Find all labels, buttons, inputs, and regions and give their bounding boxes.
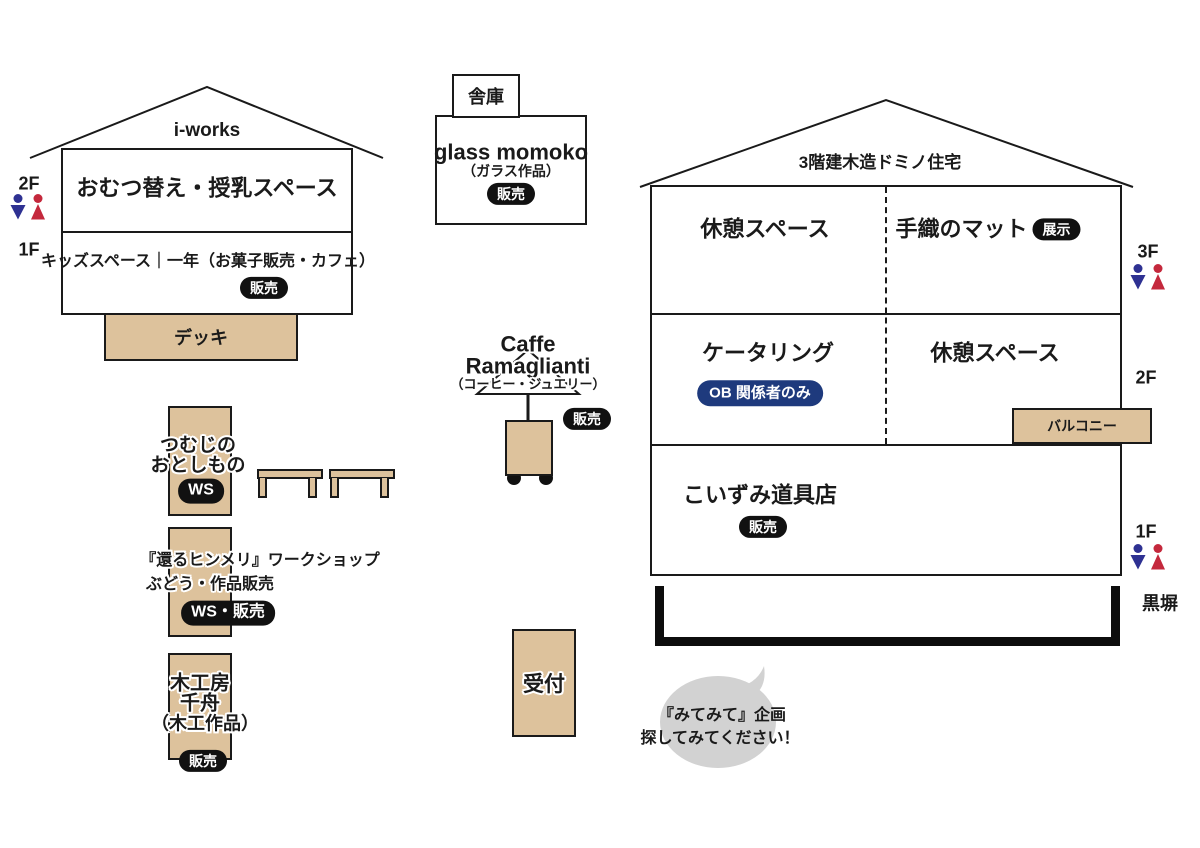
note-bubble-line1: 『みてみて』企画	[658, 707, 786, 725]
right-building-roof	[640, 100, 1133, 187]
restroom-icons	[1129, 264, 1169, 290]
storage-box: 舎庫	[452, 74, 520, 118]
right-building-3f-label: 3F	[1137, 242, 1158, 263]
woven-mat-label: 手織のマット	[895, 216, 1027, 241]
mokkobo-label-line3: （木工作品）	[151, 714, 259, 735]
note-bubble-line2: 探してみてください！	[640, 730, 799, 748]
caffe-subtitle: （コーヒー・ジュエリー）	[450, 378, 605, 393]
table-leg	[330, 478, 339, 498]
male-icon	[1131, 264, 1146, 290]
mokkobo-label-line2: 千舟	[180, 693, 220, 716]
tsumuji-badge-wrap: WS	[178, 479, 224, 504]
deck-label: デッキ	[174, 324, 228, 350]
table-icon	[257, 469, 323, 499]
deck-area: デッキ	[104, 313, 298, 361]
table-leg	[380, 478, 389, 498]
coffee-cart	[505, 420, 553, 476]
reception-label: 受付	[523, 668, 565, 698]
caffe-badge-wrap: 販売	[563, 408, 611, 430]
balcony-label: バルコニー	[1047, 416, 1117, 436]
black-fence-label: 黒塀	[1142, 594, 1178, 615]
right-building-roof-label: 3階建木造ドミノ住宅	[799, 153, 961, 173]
glass-momoko-subtitle: （ガラス作品）	[462, 163, 560, 179]
kids-space-sale-badge-wrap: 販売	[240, 277, 288, 299]
event-venue-map: i-works 2F 1F おむつ替え・授乳スペース キッズスペース｜一年（お菓…	[0, 0, 1200, 848]
himmeli-label-line2: ぶどう・作品販売	[146, 576, 274, 594]
glass-momoko-badge-wrap: 販売	[487, 183, 535, 205]
black-fence	[655, 586, 1120, 646]
left-building-1f-label: 1F	[18, 240, 39, 261]
right-building-1f-label: 1F	[1135, 522, 1156, 543]
storage-label: 舎庫	[468, 83, 504, 109]
kids-space-label: キッズスペース｜一年（お菓子販売・カフェ）	[41, 253, 375, 271]
rest-space-3f-label: 休憩スペース	[700, 216, 829, 241]
workshop-sale-badge: WS・販売	[181, 601, 275, 626]
male-icon	[11, 194, 26, 220]
glass-momoko-title: glass momoko	[434, 139, 588, 164]
right-building-floor-divider-2f	[650, 444, 1122, 446]
himmeli-badge-wrap: WS・販売	[181, 601, 275, 626]
ob-only-badge-wrap: OB 関係者のみ	[697, 380, 823, 406]
table-leg	[258, 478, 267, 498]
koizumi-store-label: こいずみ道具店	[683, 482, 837, 507]
reception-box: 受付	[512, 629, 576, 737]
sale-badge: 販売	[179, 750, 227, 772]
catering-label: ケータリング	[702, 340, 834, 365]
female-icon	[31, 194, 45, 220]
right-building-2f-label: 2F	[1135, 368, 1156, 389]
female-icon	[1151, 264, 1165, 290]
table-icon	[329, 469, 395, 499]
left-building-roof-label: i-works	[174, 120, 241, 142]
rest-space-2f-label: 休憩スペース	[930, 340, 1059, 365]
koizumi-badge-wrap: 販売	[739, 516, 787, 538]
restroom-icons	[9, 194, 49, 220]
table-leg	[308, 478, 317, 498]
caffe-title-line2: Ramaglianti	[466, 353, 591, 378]
sale-badge: 販売	[487, 183, 535, 205]
sale-badge: 販売	[240, 277, 288, 299]
restroom-icons	[1129, 544, 1169, 570]
nursing-space-label: おむつ替え・授乳スペース	[76, 175, 337, 200]
mokkobo-badge-wrap: 販売	[179, 750, 227, 772]
exhibit-badge: 展示	[1033, 218, 1081, 240]
woven-mat-group: 手織のマット 展示	[895, 216, 1080, 241]
female-icon	[1151, 544, 1165, 570]
sale-badge: 販売	[739, 516, 787, 538]
left-building-2f-label: 2F	[18, 174, 39, 195]
tsumuji-label-line2: おとしもの	[150, 455, 245, 477]
himmeli-label-line1: 『還るヒンメリ』ワークショップ	[140, 552, 380, 570]
balcony-area: バルコニー	[1012, 408, 1152, 444]
right-building-room-divider	[885, 187, 887, 444]
left-building-floor-divider	[61, 231, 353, 233]
sale-badge: 販売	[563, 408, 611, 430]
workshop-badge: WS	[178, 479, 224, 504]
ob-only-badge: OB 関係者のみ	[697, 380, 823, 406]
male-icon	[1131, 544, 1146, 570]
tsumuji-label-line1: つむじの	[160, 435, 236, 457]
